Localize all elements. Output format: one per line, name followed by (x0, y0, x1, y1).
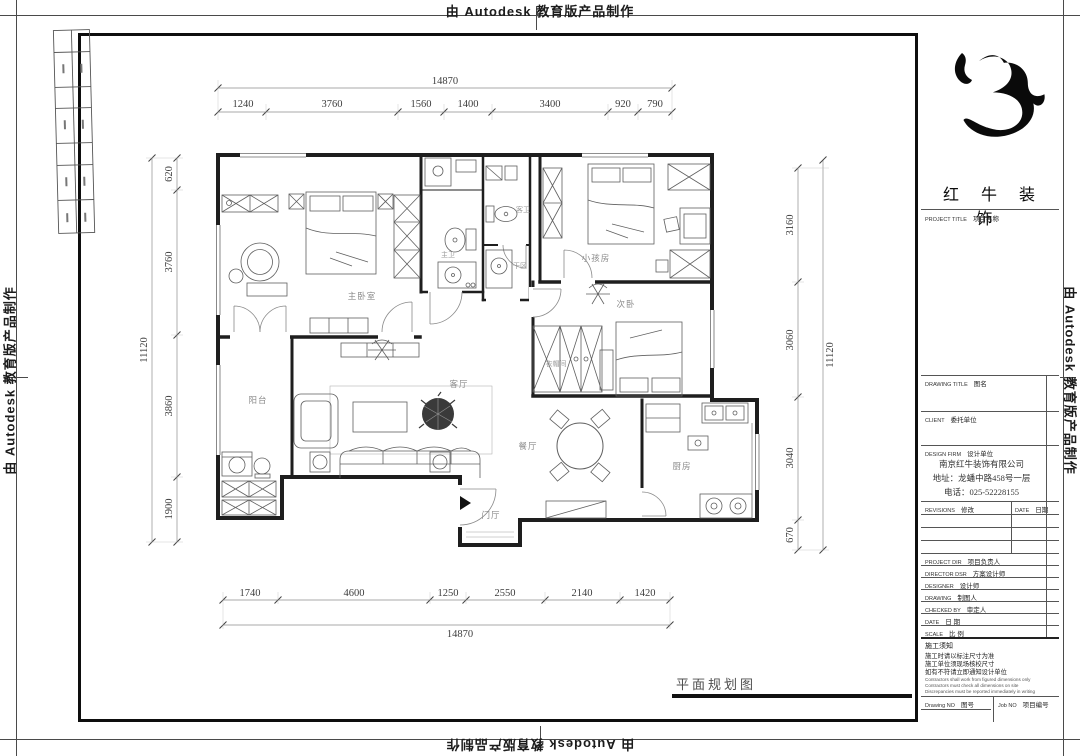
dimension-labels: 14870 1240 3760 1560 1400 3400 920 790 1… (139, 76, 836, 640)
tb-jobno-divider (993, 696, 994, 722)
dim-right-total: 11120 (825, 342, 836, 367)
cad-sheet-page: 由 Autodesk 教育版产品制作 由 Autodesk 教育版产品制作 由 … (0, 0, 1080, 756)
dim-bottom-seg: 2140 (572, 588, 593, 599)
sofa (340, 447, 480, 478)
dim-right-seg: 3040 (785, 448, 796, 469)
dim-top-seg: 1560 (411, 99, 432, 110)
room-label-dry-area: 干区 (513, 262, 527, 270)
dim-bottom-seg: 1420 (635, 588, 656, 599)
kids-wardrobe (668, 164, 710, 190)
second-bed (600, 322, 682, 396)
caption: 平面规划图 (672, 677, 912, 698)
notes-en-line: Contractors shall work from figured dime… (925, 677, 1030, 682)
room-label-living-room: 客厅 (449, 379, 468, 389)
dim-left-seg: 3860 (164, 396, 175, 417)
revision-strip (53, 30, 94, 234)
side-tables (310, 452, 450, 472)
walls (218, 155, 757, 545)
entry-mat (466, 532, 514, 537)
ceiling-fan-second-bedroom (586, 284, 610, 304)
coffee-table (353, 402, 407, 432)
tb-divider (921, 445, 1059, 446)
dim-bottom-seg: 1740 (240, 588, 261, 599)
dim-top-seg: 1400 (458, 99, 479, 110)
tb-client-cn: 委托单位 (951, 417, 977, 424)
room-label-kitchen: 厨房 (672, 461, 691, 471)
tb-client-en: CLIENT (925, 418, 945, 424)
title-block: 红 牛 装 饰 PROJECT TITLE项目名称 DRAWING TITLE图… (915, 33, 1060, 722)
tb-divider (921, 375, 1059, 376)
dining-table (550, 409, 610, 481)
company-phone: 电话：025-52228155 (921, 485, 1042, 499)
dim-left-seg: 1900 (164, 499, 175, 520)
room-label-dining-room: 餐厅 (518, 441, 537, 451)
tb-divider (921, 209, 1059, 210)
entry-marker (460, 496, 471, 510)
plant (419, 392, 457, 430)
lounge-chair (229, 243, 287, 296)
room-label-cloakroom: 衣帽间 (546, 359, 567, 368)
dim-bottom-seg: 4600 (344, 588, 365, 599)
room-label-balcony: 阳台 (248, 395, 267, 405)
dim-bottom-seg: 1250 (438, 588, 459, 599)
kitchen-counter-box (688, 436, 708, 450)
dim-left-total: 11120 (139, 337, 150, 362)
tb-date-col-label: DATE日期 (1015, 504, 1056, 514)
tb-divider (921, 514, 1059, 515)
tb-client-row: CLIENT委托单位 (925, 414, 1056, 424)
tb-divider (921, 527, 1059, 528)
armchair (294, 394, 338, 448)
dim-top-seg: 3760 (322, 99, 343, 110)
living-rug (330, 386, 492, 454)
dim-top-seg: 790 (647, 99, 663, 110)
storage-cabinets (222, 481, 276, 515)
dim-right-seg: 3060 (785, 330, 796, 351)
tb-project-title-en: PROJECT TITLE (925, 217, 967, 223)
sink-master (438, 262, 476, 288)
tb-divider (921, 709, 991, 710)
master-wardrobe (394, 195, 420, 278)
furniture (222, 158, 752, 537)
dim-top-total: 14870 (432, 76, 458, 87)
kids-cabinet (656, 250, 710, 278)
caption-underline (672, 694, 912, 698)
tb-project-title-row: PROJECT TITLE项目名称 (925, 213, 1056, 223)
company-address: 地址：龙蟠中路458号一层 (921, 471, 1042, 485)
tb-divider (921, 601, 1059, 602)
dim-top-seg: 920 (615, 99, 631, 110)
room-labels: 主卧室 主卫 客卫 干区 小孩房 次卧 衣帽间 阳台 客厅 餐厅 厨房 门厅 (248, 205, 691, 520)
tb-drawing-title-en: DRAWING TITLE (925, 382, 968, 388)
dim-top-seg: 1240 (233, 99, 254, 110)
dim-bottom-seg: 2550 (495, 588, 516, 599)
master-low-cabinet (310, 318, 368, 333)
dim-top-seg: 3400 (540, 99, 561, 110)
tb-job-no-en: Job NO (998, 703, 1017, 709)
notes-title: 施工须知 (925, 641, 953, 651)
toilet-master (445, 228, 476, 252)
tb-divider (921, 565, 1059, 566)
room-label-second-bedroom: 次卧 (616, 299, 635, 309)
dim-left-seg: 620 (164, 166, 175, 182)
tb-value-column-divider (1046, 375, 1047, 637)
stove (700, 494, 752, 518)
tb-divider (921, 696, 1059, 697)
tb-divider (921, 589, 1059, 590)
shoe-cabinet (546, 501, 606, 518)
caption-text: 平面规划图 (676, 677, 756, 692)
tb-divider (921, 411, 1059, 412)
room-label-master-bath: 主卫 (441, 250, 455, 259)
tb-job-no-cn: 项目编号 (1023, 702, 1049, 709)
tb-divider (921, 540, 1059, 541)
tb-drawing-no-cn: 图号 (961, 702, 974, 709)
dim-right (792, 157, 829, 554)
tb-project-title-cn: 项目名称 (973, 216, 999, 223)
notes-cn-line: 如有不符请立即通知设计单位 (925, 667, 1007, 676)
cloakroom-wardrobes (533, 326, 602, 392)
company-name: 南京红牛装饰有限公司 (921, 457, 1042, 471)
tb-thick-divider (921, 637, 1059, 639)
brand-logo-icon (934, 39, 1046, 177)
kids-bed (588, 164, 654, 244)
room-label-master-bedroom: 主卧室 (348, 291, 377, 301)
dim-left-seg: 3760 (164, 252, 175, 273)
dim-bottom-total: 14870 (447, 629, 473, 640)
notes-en-line: Discrepancies must be reported immediate… (925, 689, 1035, 694)
nightstands (289, 194, 393, 209)
sink-dry-area (486, 250, 512, 288)
room-label-guest-bath: 客卫 (516, 205, 530, 214)
washing-machine (222, 452, 270, 478)
kids-desk (664, 208, 710, 244)
fridge (646, 404, 680, 432)
dim-right-seg: 670 (785, 527, 796, 543)
room-label-entry: 门厅 (481, 510, 500, 520)
tb-divider (921, 501, 1059, 502)
tb-divider (921, 613, 1059, 614)
notes-en-line: Contractors must check all dimensions on… (925, 683, 1018, 688)
tb-job-no-label: Job NO项目编号 (998, 699, 1056, 709)
tb-drawing-title-row: DRAWING TITLE图名 (925, 378, 1056, 388)
tb-divider (921, 625, 1059, 626)
dim-right-seg: 3160 (785, 215, 796, 236)
dresser (222, 195, 278, 212)
tb-divider (921, 553, 1059, 554)
dim-left (146, 155, 183, 546)
tb-divider (921, 577, 1059, 578)
tb-revisions-cn: 修改 (961, 507, 974, 514)
toilet-guest (486, 166, 517, 222)
hall-cabinet (543, 168, 562, 238)
master-bed (306, 192, 376, 274)
kitchen-counter-knob (695, 440, 701, 446)
shower (425, 158, 476, 186)
tb-drawing-title-cn: 图名 (974, 381, 987, 388)
room-label-kids-room: 小孩房 (582, 253, 611, 263)
kitchen-sink (702, 403, 748, 423)
